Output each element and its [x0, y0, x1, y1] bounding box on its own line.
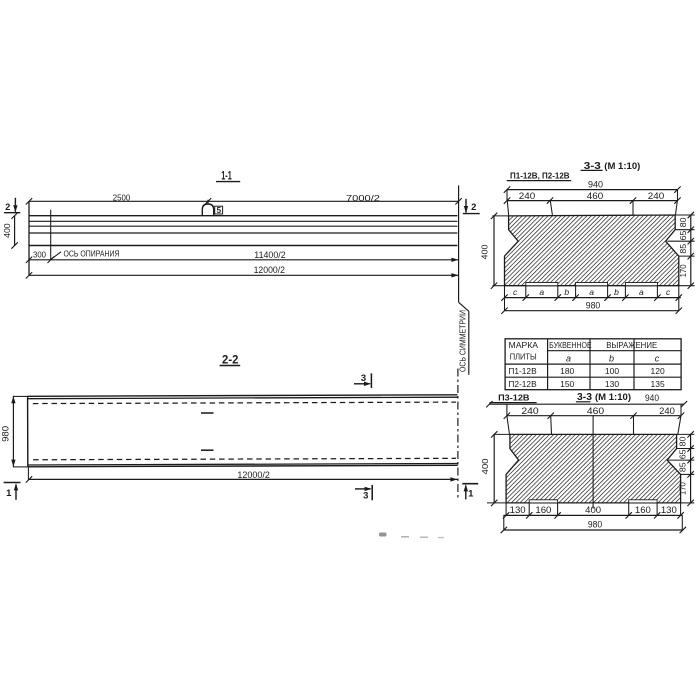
svg-text:400: 400 — [480, 244, 490, 259]
svg-text:ВЫРАЖЕНИЕ: ВЫРАЖЕНИЕ — [606, 341, 658, 350]
svg-text:170: 170 — [679, 481, 688, 495]
svg-text:65: 65 — [679, 449, 688, 460]
svg-text:80: 80 — [679, 436, 688, 447]
svg-text:a: a — [539, 287, 544, 297]
svg-text:240: 240 — [521, 406, 538, 416]
svg-text:МАРКА: МАРКА — [509, 340, 539, 350]
svg-text:11400/2: 11400/2 — [254, 250, 285, 260]
svg-text:a: a — [566, 354, 571, 364]
svg-text:(М 1:10): (М 1:10) — [604, 161, 640, 171]
svg-text:П1-12В: П1-12В — [508, 366, 537, 376]
svg-text:980: 980 — [586, 300, 601, 310]
svg-text:a: a — [639, 287, 644, 297]
svg-text:460: 460 — [587, 191, 604, 201]
svg-text:c: c — [666, 287, 671, 297]
svg-text:460: 460 — [587, 406, 604, 416]
svg-text:980: 980 — [1, 426, 11, 442]
svg-text:b: b — [614, 287, 619, 297]
svg-text:170: 170 — [679, 264, 688, 278]
svg-text:ОСЬ СИММЕТРИИ: ОСЬ СИММЕТРИИ — [458, 310, 467, 372]
svg-text:120: 120 — [651, 366, 666, 376]
svg-text:2: 2 — [471, 202, 476, 213]
svg-text:65: 65 — [679, 230, 688, 241]
svg-text:(М 1:10): (М 1:10) — [595, 392, 631, 402]
svg-text:240: 240 — [659, 406, 675, 416]
svg-text:2500: 2500 — [113, 193, 131, 203]
svg-text:135: 135 — [651, 379, 666, 389]
svg-text:160: 160 — [535, 505, 551, 515]
svg-text:2: 2 — [5, 202, 10, 212]
svg-text:7000/2: 7000/2 — [346, 193, 380, 203]
svg-text:12000/2: 12000/2 — [254, 265, 285, 275]
svg-text:400: 400 — [585, 505, 601, 515]
svg-text:240: 240 — [519, 191, 536, 201]
svg-text:940: 940 — [588, 179, 603, 189]
svg-text:П1-12В, П2-12В: П1-12В, П2-12В — [510, 170, 570, 180]
svg-text:130: 130 — [661, 505, 677, 515]
svg-text:1: 1 — [468, 488, 474, 499]
svg-text:3: 3 — [363, 491, 368, 502]
svg-text:180: 180 — [560, 366, 575, 376]
svg-text:2-2: 2-2 — [222, 353, 239, 367]
svg-text:1-1: 1-1 — [221, 169, 232, 183]
svg-text:5: 5 — [217, 206, 222, 215]
svg-text:ОСЬ ОПИРАНИЯ: ОСЬ ОПИРАНИЯ — [64, 248, 120, 258]
svg-text:80: 80 — [679, 217, 688, 228]
svg-text:130: 130 — [510, 505, 526, 515]
svg-text:100: 100 — [605, 366, 620, 376]
svg-text:c: c — [513, 287, 518, 297]
svg-text:980: 980 — [588, 520, 602, 530]
svg-text:160: 160 — [635, 505, 651, 515]
svg-text:ПЛИТЫ: ПЛИТЫ — [510, 352, 537, 362]
svg-text:85: 85 — [679, 462, 688, 473]
svg-text:400: 400 — [3, 223, 12, 238]
svg-text:940: 940 — [645, 393, 659, 403]
svg-text:12000/2: 12000/2 — [237, 470, 270, 480]
svg-text:130: 130 — [605, 379, 620, 389]
svg-text:240: 240 — [648, 191, 665, 201]
svg-text:1: 1 — [6, 488, 12, 499]
svg-text:300: 300 — [33, 250, 46, 260]
svg-text:85: 85 — [679, 243, 688, 254]
svg-text:П3-12В: П3-12В — [498, 393, 529, 403]
svg-text:400: 400 — [480, 458, 490, 474]
svg-text:b: b — [564, 287, 569, 297]
svg-text:b: b — [609, 354, 614, 364]
svg-text:150: 150 — [560, 379, 575, 389]
svg-text:П2-12В: П2-12В — [508, 379, 537, 389]
svg-text:a: a — [589, 287, 594, 297]
svg-text:c: c — [655, 354, 660, 364]
svg-text:БУКВЕННОЕ: БУКВЕННОЕ — [549, 341, 592, 350]
